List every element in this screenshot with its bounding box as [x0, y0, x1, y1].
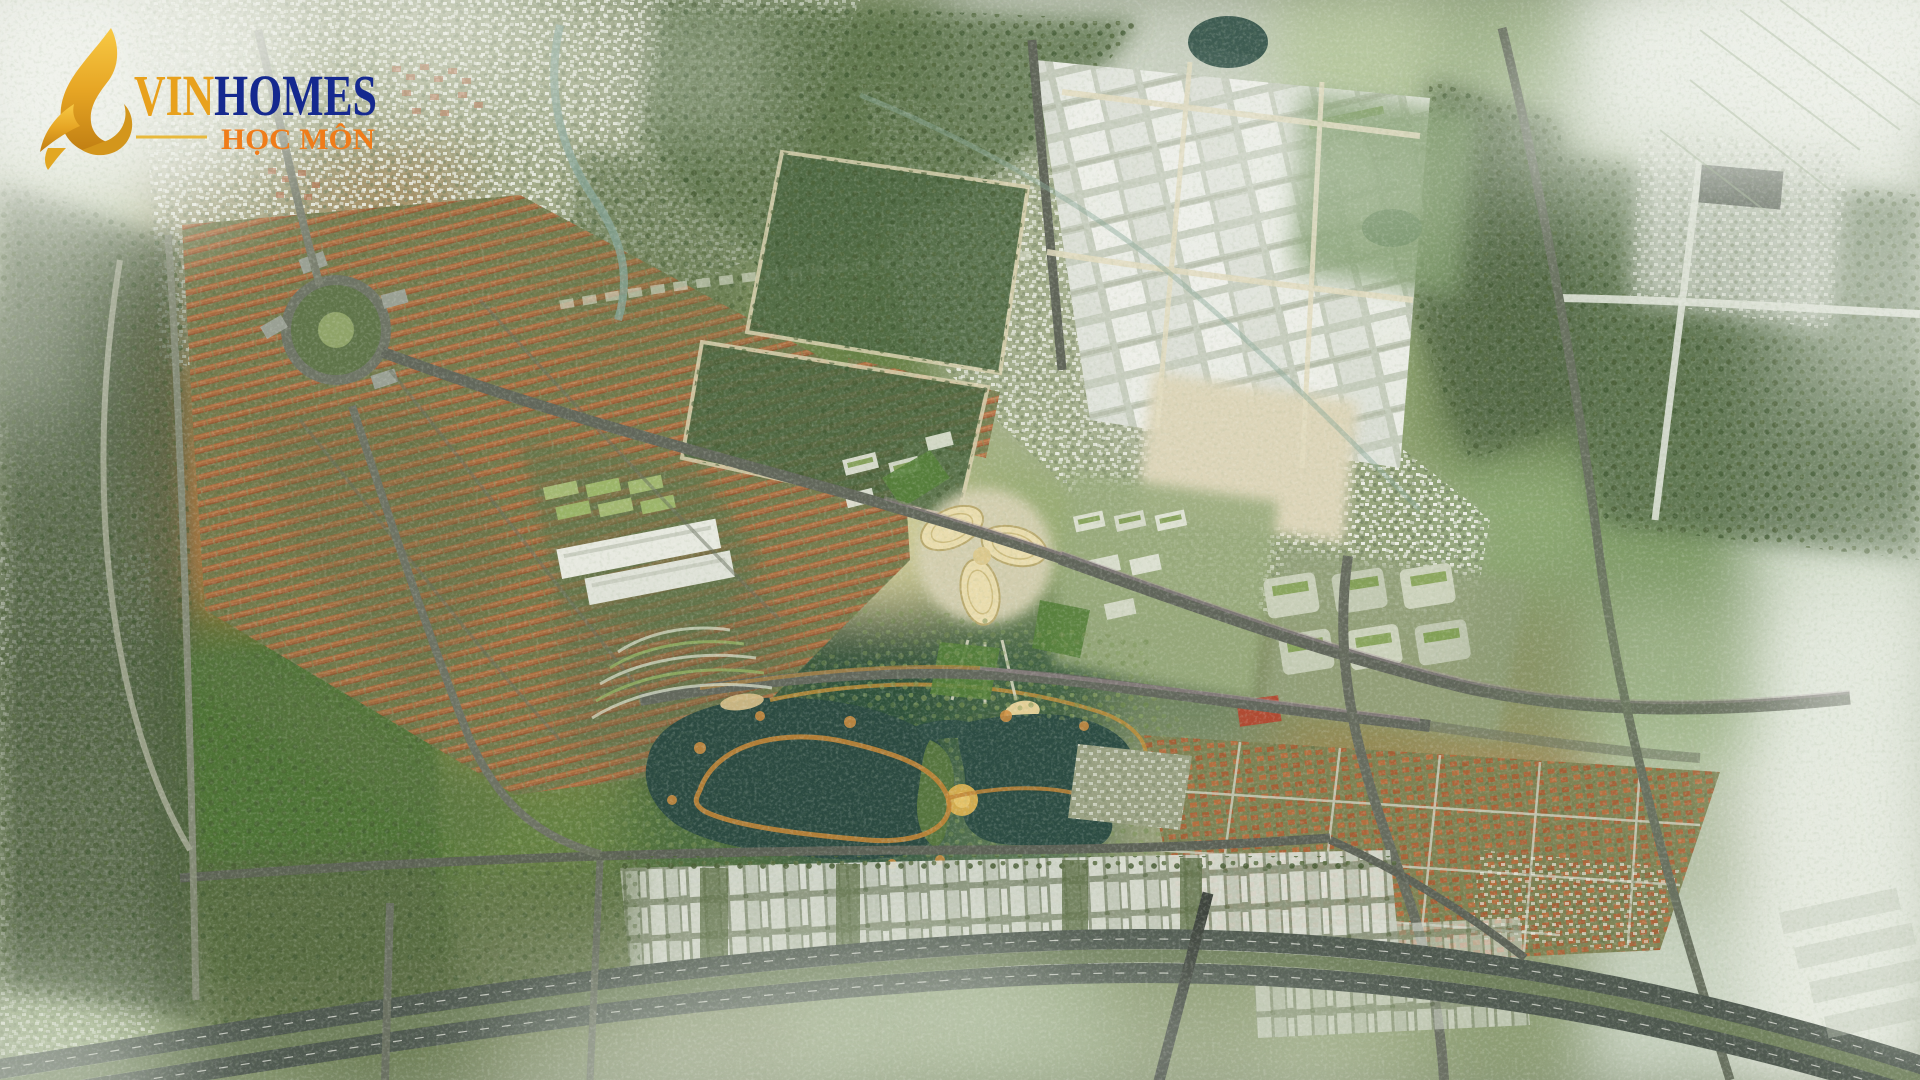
svg-text:VINHOMES: VINHOMES: [134, 63, 377, 128]
svg-text:HỌC MÔN: HỌC MÔN: [221, 123, 375, 156]
